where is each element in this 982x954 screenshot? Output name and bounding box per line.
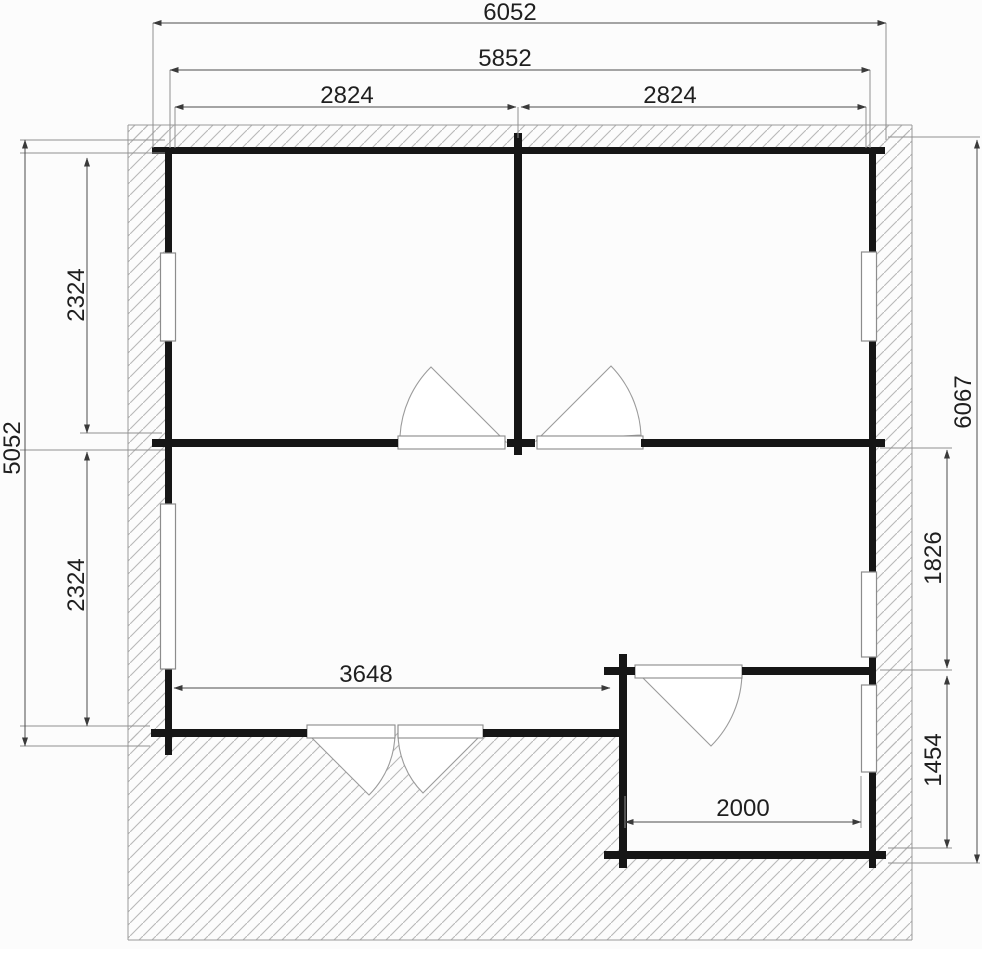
door-leaf-annex [635,665,742,678]
door-swing-arc-room-left [400,367,506,442]
wall-right-seg1 [869,147,876,252]
dim-label-left-lower: 2324 [63,558,90,611]
dim-label-inner-width: 5852 [478,45,531,72]
wall-middle-right [641,439,885,447]
wall-bottom-right [483,729,627,737]
dim-label-left-total: 5052 [0,421,26,474]
dim-label-left-upper: 2324 [63,268,90,321]
window-right-upper [862,252,877,341]
floor-plan-page: 6052 5852 2824 2824 3648 2000 5052 2324 … [0,0,982,949]
dim-label-right-lower: 1454 [920,733,947,786]
wall-right-seg2 [869,341,876,572]
window-right-annex [862,685,877,772]
floor-plan-svg: 6052 5852 2824 2824 3648 2000 5052 2324 … [0,0,982,949]
dim-label-right-total: 6067 [950,375,977,428]
wall-middle-left [152,439,398,447]
wall-bottom-left [151,729,307,737]
door-leaf-terrace-left [307,725,395,738]
wall-right-seg4 [869,772,876,868]
door-leaf-room-right [537,436,643,449]
wall-right-seg3 [869,657,876,685]
door-leaf-terrace-right [398,725,483,738]
dim-label-room-right-width: 2824 [643,82,696,109]
wall-left-seg3 [165,669,172,755]
wall-annex-left [619,654,627,868]
dim-label-living-width: 3648 [339,661,392,688]
wall-left-seg1 [165,147,172,253]
window-right-middle [862,572,877,657]
window-left-lower [161,504,176,669]
annex-room-interior [627,676,869,851]
wall-annex-top-right [742,667,876,675]
wall-central [514,133,522,455]
door-leaf-room-left [398,436,505,449]
wall-left-seg2 [165,341,172,504]
window-left-upper [161,253,176,341]
dim-label-right-upper: 1826 [920,531,947,584]
wall-annex-bottom [604,851,886,859]
door-swing-arc-room-right [536,366,641,441]
dim-label-room-left-width: 2824 [320,82,373,109]
dim-label-annex-width: 2000 [716,795,769,822]
dim-label-overall-width: 6052 [483,0,536,26]
